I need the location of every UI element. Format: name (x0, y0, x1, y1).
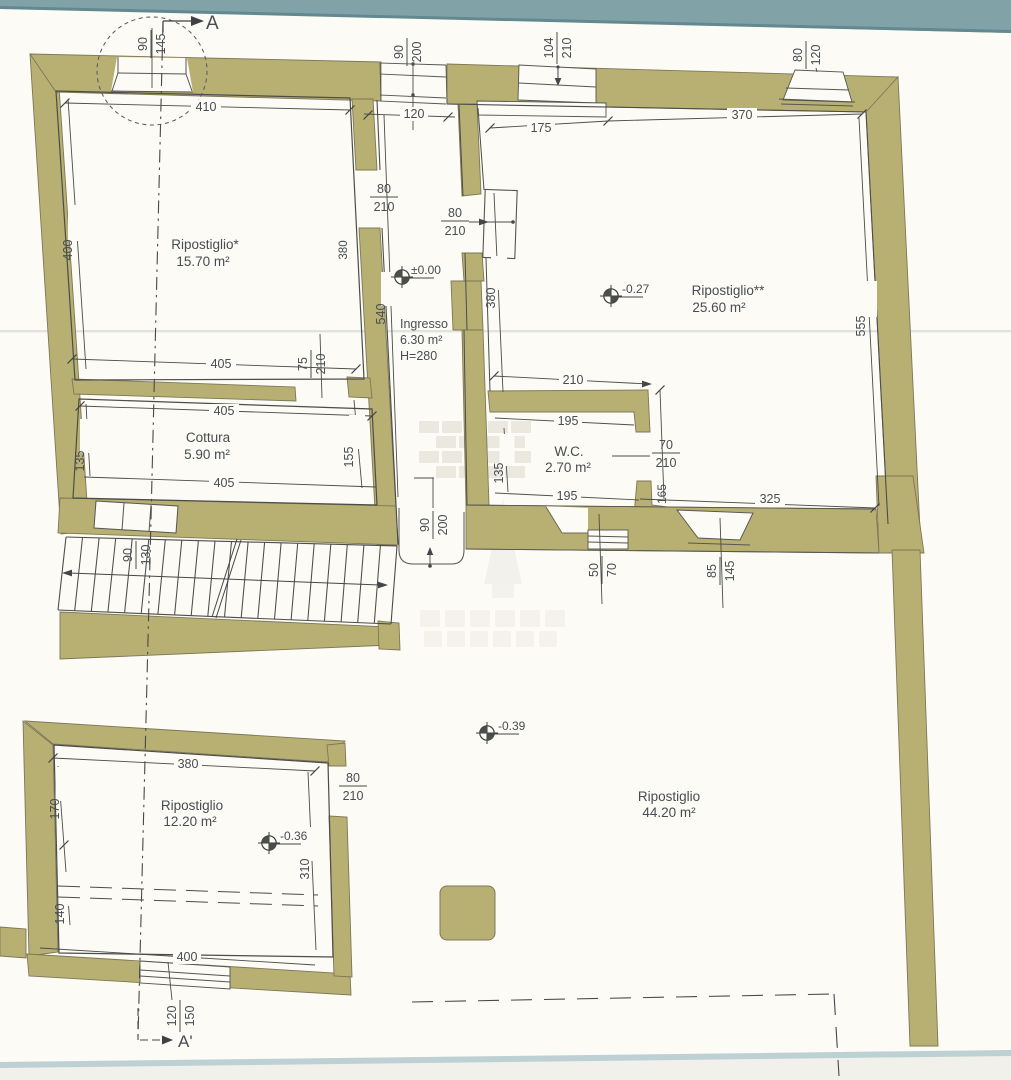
svg-text:130: 130 (139, 545, 153, 566)
svg-text:210: 210 (445, 224, 466, 238)
svg-text:80: 80 (346, 771, 360, 785)
svg-text:75: 75 (296, 357, 310, 371)
svg-text:145: 145 (723, 561, 737, 582)
svg-text:25.60 m²: 25.60 m² (692, 300, 746, 315)
svg-text:-0.27: -0.27 (622, 282, 650, 296)
svg-text:Ripostiglio**: Ripostiglio** (692, 283, 766, 298)
svg-text:120: 120 (404, 107, 425, 121)
svg-text:90: 90 (418, 518, 432, 532)
svg-text:90: 90 (392, 45, 406, 59)
svg-text:210: 210 (343, 789, 364, 803)
svg-text:210: 210 (560, 38, 574, 59)
svg-text:70: 70 (659, 438, 673, 452)
svg-text:12.20 m²: 12.20 m² (163, 814, 217, 829)
svg-text:370: 370 (732, 108, 753, 122)
svg-text:Ripostiglio: Ripostiglio (638, 789, 700, 804)
svg-text:405: 405 (214, 476, 235, 490)
svg-text:H=280: H=280 (400, 349, 437, 363)
svg-text:5.90 m²: 5.90 m² (184, 447, 230, 462)
svg-text:Ripostiglio: Ripostiglio (161, 798, 223, 813)
svg-text:120: 120 (165, 1006, 179, 1027)
svg-text:W.C.: W.C. (554, 444, 583, 459)
svg-text:380: 380 (484, 288, 498, 309)
svg-text:2.70 m²: 2.70 m² (545, 460, 591, 475)
svg-text:±0.00: ±0.00 (411, 263, 441, 277)
svg-text:175: 175 (531, 121, 552, 135)
svg-text:44.20 m²: 44.20 m² (642, 805, 696, 820)
svg-text:70: 70 (605, 563, 619, 577)
svg-text:140: 140 (53, 904, 67, 925)
svg-text:200: 200 (410, 42, 424, 63)
svg-text:165: 165 (655, 484, 669, 504)
svg-text:210: 210 (314, 354, 328, 375)
svg-text:145: 145 (154, 34, 168, 55)
svg-text:170: 170 (48, 799, 62, 820)
svg-text:-0.36: -0.36 (280, 829, 308, 843)
svg-text:Ingresso: Ingresso (400, 317, 448, 331)
svg-text:80: 80 (377, 182, 391, 196)
svg-text:405: 405 (214, 404, 235, 418)
svg-text:A: A (206, 13, 219, 34)
svg-text:400: 400 (61, 240, 75, 261)
svg-text:85: 85 (705, 564, 719, 578)
svg-text:Ripostiglio*: Ripostiglio* (171, 237, 239, 252)
svg-text:90: 90 (136, 37, 150, 51)
svg-text:120: 120 (809, 45, 823, 66)
svg-text:A': A' (178, 1032, 193, 1051)
svg-text:90: 90 (121, 548, 135, 562)
svg-text:380: 380 (178, 757, 199, 771)
svg-text:-0.39: -0.39 (498, 719, 526, 733)
svg-text:50: 50 (587, 563, 601, 577)
svg-text:195: 195 (557, 489, 578, 503)
svg-text:80: 80 (791, 48, 805, 62)
svg-text:310: 310 (298, 859, 312, 880)
svg-text:555: 555 (854, 316, 868, 337)
svg-text:6.30 m²: 6.30 m² (400, 333, 442, 347)
svg-text:135: 135 (492, 463, 506, 484)
svg-text:210: 210 (656, 456, 677, 470)
svg-text:150: 150 (183, 1006, 197, 1027)
svg-text:Cottura: Cottura (186, 430, 231, 445)
svg-text:410: 410 (196, 100, 217, 114)
svg-text:195: 195 (558, 414, 579, 428)
svg-text:405: 405 (211, 357, 232, 371)
svg-text:135: 135 (73, 451, 87, 472)
svg-text:80: 80 (448, 206, 462, 220)
svg-text:200: 200 (436, 515, 450, 536)
svg-text:380: 380 (338, 240, 350, 259)
svg-text:210: 210 (374, 200, 395, 214)
svg-text:104: 104 (542, 38, 556, 59)
svg-text:15.70 m²: 15.70 m² (176, 254, 230, 269)
svg-text:540: 540 (374, 304, 388, 325)
svg-text:155: 155 (342, 447, 356, 468)
svg-text:400: 400 (177, 950, 198, 964)
svg-text:210: 210 (563, 373, 584, 387)
svg-text:325: 325 (760, 492, 781, 506)
